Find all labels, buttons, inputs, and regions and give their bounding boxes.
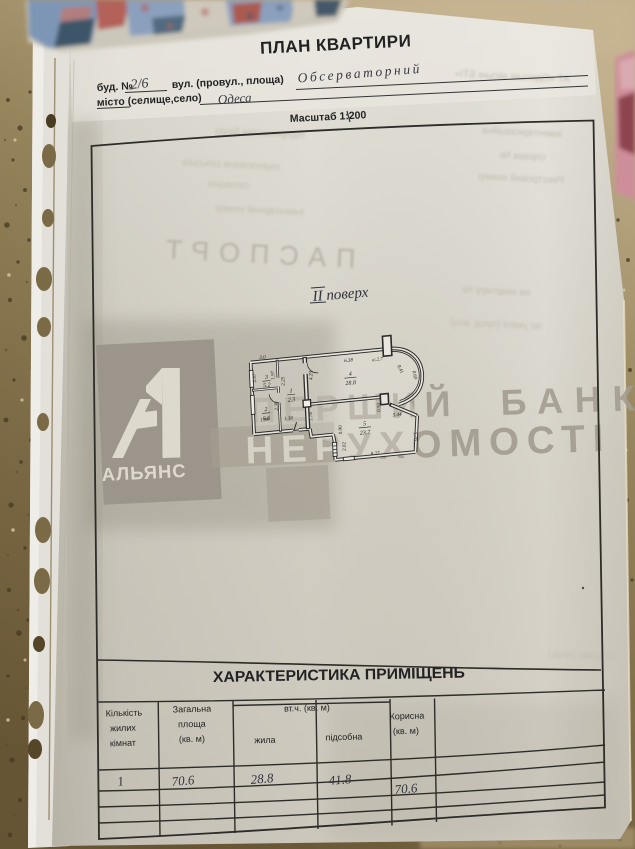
- svg-text:к:2.7: к:2.7: [372, 356, 383, 363]
- svg-text:1.97: 1.97: [270, 370, 276, 380]
- svg-text:АЛЬЯНС: АЛЬЯНС: [101, 460, 186, 485]
- svg-text:28.8: 28.8: [345, 380, 356, 387]
- svg-text:0.50: 0.50: [376, 402, 382, 412]
- svg-text:41.8: 41.8: [328, 771, 352, 788]
- svg-text:5: 5: [363, 421, 366, 427]
- svg-text:28.8: 28.8: [250, 770, 274, 787]
- svg-text:5.2: 5.2: [263, 383, 271, 390]
- svg-text:3.0: 3.0: [259, 354, 266, 361]
- svg-text:70.6: 70.6: [171, 772, 195, 789]
- svg-text:4: 4: [349, 370, 352, 377]
- svg-text:3: 3: [264, 375, 268, 381]
- svg-text:жилих: жилих: [110, 723, 137, 734]
- svg-text:8.27: 8.27: [371, 450, 381, 457]
- svg-text:5.44: 5.44: [393, 411, 403, 419]
- svg-text:1: 1: [289, 388, 292, 394]
- svg-text:Загальна: Загальна: [173, 703, 212, 714]
- svg-text:Кількість: Кількість: [106, 708, 143, 719]
- svg-text:Корисна: Корисна: [389, 711, 424, 722]
- svg-text:2.37: 2.37: [252, 373, 258, 383]
- svg-text:2.3: 2.3: [288, 397, 296, 404]
- svg-text:6.38: 6.38: [344, 357, 354, 364]
- svg-text:2.02: 2.02: [342, 441, 348, 451]
- svg-text:підсобна: підсобна: [325, 732, 362, 743]
- svg-text:1.74: 1.74: [307, 411, 314, 421]
- svg-text:(кв. м): (кв. м): [179, 734, 205, 745]
- svg-text:2.25: 2.25: [280, 376, 286, 386]
- svg-text:2: 2: [264, 407, 267, 413]
- svg-text:жила: жила: [254, 735, 276, 746]
- svg-text:кімнат: кімнат: [110, 738, 136, 749]
- svg-text:70.6: 70.6: [394, 780, 418, 797]
- svg-text:вт.ч. (кв. м): вт.ч. (кв. м): [284, 702, 330, 713]
- svg-text:2/6: 2/6: [130, 76, 149, 93]
- svg-text:справа №: справа №: [499, 150, 546, 163]
- svg-text:0.90: 0.90: [338, 425, 344, 435]
- svg-text:2.30: 2.30: [274, 401, 280, 411]
- svg-text:площа: площа: [178, 719, 206, 730]
- svg-text:1.38: 1.38: [284, 415, 294, 422]
- svg-text:(кв. м): (кв. м): [393, 726, 419, 737]
- svg-text:23.7: 23.7: [360, 430, 372, 437]
- svg-text:4.29: 4.29: [307, 370, 314, 380]
- svg-text:селищна: селищна: [207, 179, 249, 192]
- svg-text:Одеса: Одеса: [217, 90, 252, 107]
- svg-text:1.99: 1.99: [260, 417, 270, 424]
